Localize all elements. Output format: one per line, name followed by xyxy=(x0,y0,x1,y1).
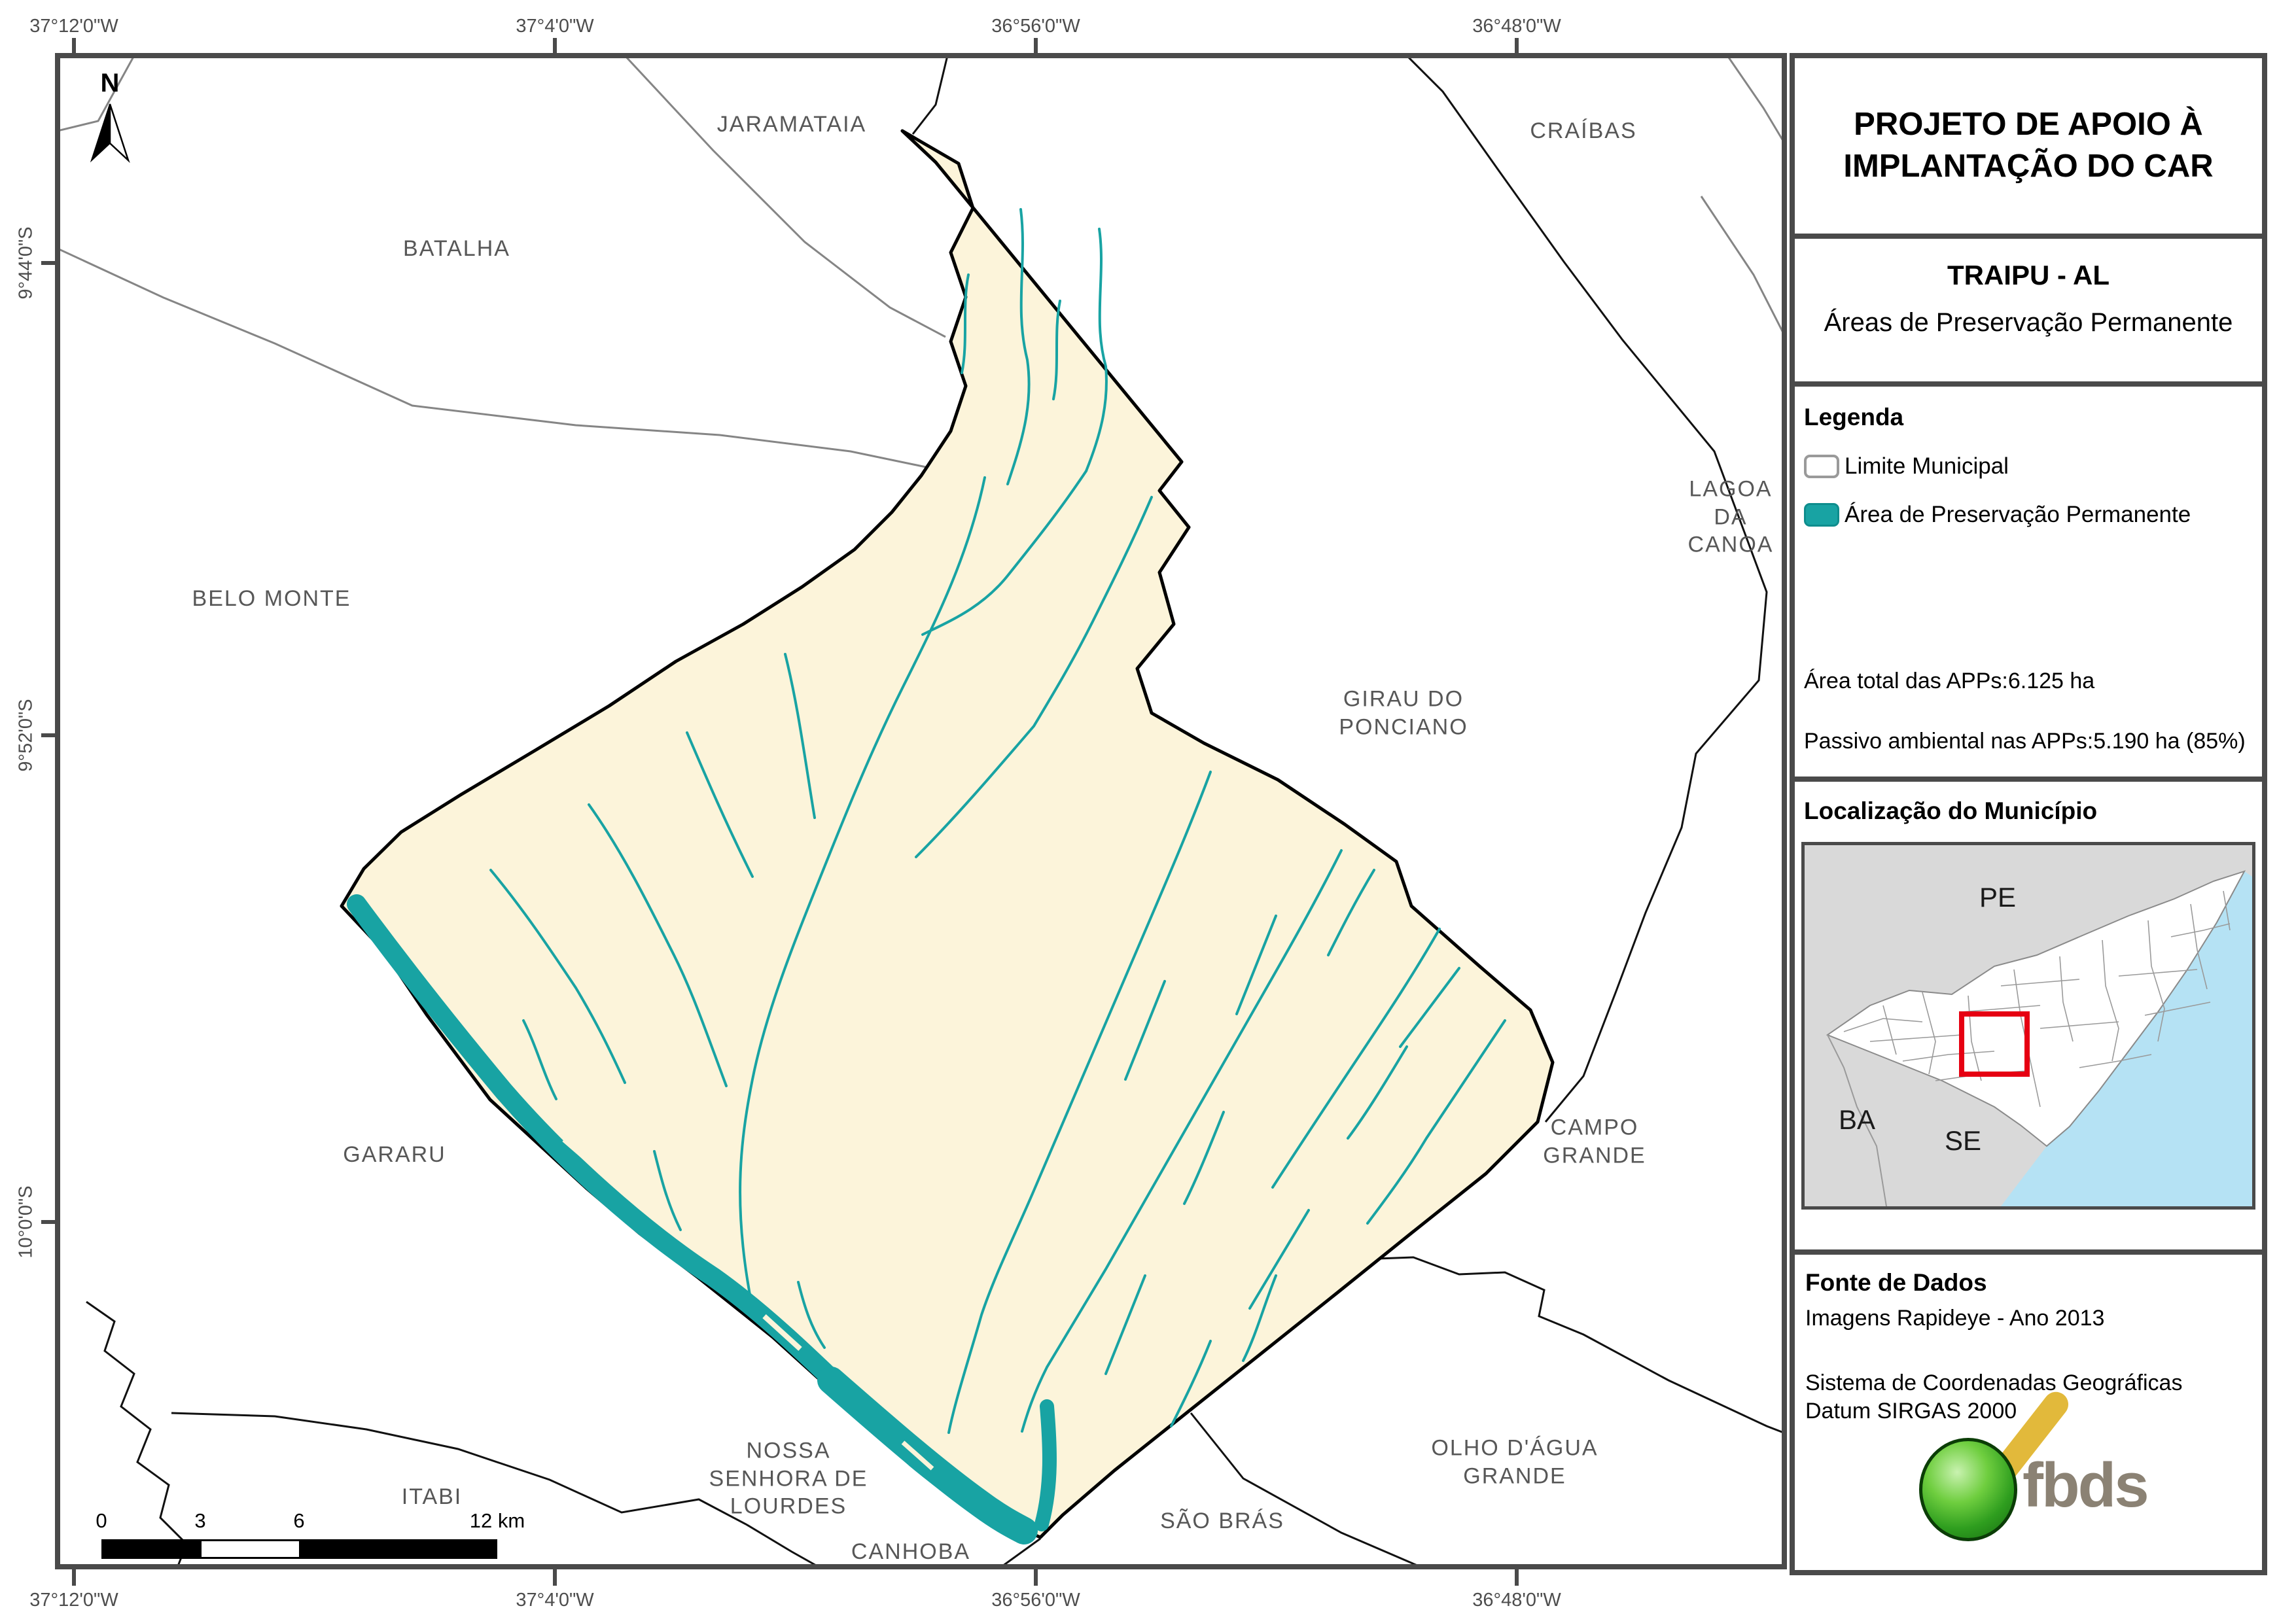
location-inset-map: PE BA SE xyxy=(1801,842,2255,1210)
tick-bottom-2 xyxy=(553,1569,557,1586)
tick-bottom-1 xyxy=(72,1569,76,1586)
axis-label-top-1: 37°12'0"W xyxy=(29,16,118,37)
inset-label-pe: PE xyxy=(1979,882,2016,913)
axis-label-bottom-1: 37°12'0"W xyxy=(29,1590,118,1611)
fbds-logo: fbds xyxy=(1919,1372,2155,1562)
map-label-jaramataia: JARAMATAIA xyxy=(717,111,866,139)
project-title-line1: PROJETO DE APOIO À xyxy=(1843,104,2213,146)
axis-label-bottom-3: 36°56'0"W xyxy=(991,1590,1080,1611)
tick-left-2 xyxy=(41,733,58,737)
map-label-craibas: CRAÍBAS xyxy=(1530,117,1636,145)
project-title: PROJETO DE APOIO À IMPLANTAÇÃO DO CAR xyxy=(1843,104,2213,187)
scale-tick-0: 0 xyxy=(96,1509,107,1533)
panel-title-box: PROJETO DE APOIO À IMPLANTAÇÃO DO CAR xyxy=(1790,53,2267,239)
location-heading: Localização do Município xyxy=(1804,797,2253,825)
tick-left-3 xyxy=(41,1220,58,1224)
axis-label-left-1: 9°44'0"S xyxy=(16,226,37,299)
axis-label-top-4: 36°48'0"W xyxy=(1472,16,1561,37)
map-label-lagoa-da-canoa: LAGOA DA CANOA xyxy=(1688,475,1774,559)
axis-label-bottom-2: 37°4'0"W xyxy=(516,1590,593,1611)
scale-bar: 0 3 6 12 km xyxy=(77,1509,522,1569)
tick-bottom-3 xyxy=(1034,1569,1038,1586)
source-heading: Fonte de Dados xyxy=(1805,1269,2252,1297)
map-label-gararu: GARARU xyxy=(343,1141,446,1169)
panel-subtitle-box: TRAIPU - AL Áreas de Preservação Permane… xyxy=(1790,234,2267,387)
inset-map-graphic xyxy=(1805,845,2252,1206)
map-label-batalha: BATALHA xyxy=(403,235,510,263)
fbds-logo-text: fbds xyxy=(2022,1450,2147,1522)
map-graphic xyxy=(58,56,1787,1569)
inset-label-ba: BA xyxy=(1839,1104,1875,1136)
legend-item-app: Área de Preservação Permanente xyxy=(1804,502,2253,528)
axis-label-left-3: 10°0'0"S xyxy=(16,1185,37,1258)
panel-source-box: Fonte de Dados Imagens Rapideye - Ano 20… xyxy=(1790,1249,2267,1575)
tick-top-2 xyxy=(553,38,557,54)
map-label-itabi: ITABI xyxy=(402,1483,463,1511)
legend-item-label: Limite Municipal xyxy=(1845,453,2009,480)
scale-tick-6: 6 xyxy=(293,1509,304,1533)
fbds-logo-globe-icon xyxy=(1919,1438,2017,1541)
map-subject: Áreas de Preservação Permanente xyxy=(1795,308,2262,338)
inset-label-se: SE xyxy=(1945,1125,1981,1157)
scale-tick-3: 3 xyxy=(194,1509,205,1533)
legend-item-label: Área de Preservação Permanente xyxy=(1845,502,2191,528)
panel-legend-box: Legenda Limite Municipal Área de Preserv… xyxy=(1790,381,2267,782)
municipality-name: TRAIPU - AL xyxy=(1795,260,2262,291)
panel-location-box: Localização do Município xyxy=(1790,777,2267,1255)
legend-heading: Legenda xyxy=(1804,404,2253,431)
municipal-limit-swatch-icon xyxy=(1804,455,1839,478)
tick-left-1 xyxy=(41,261,58,265)
map-label-girau-do-ponciano: GIRAU DO PONCIANO xyxy=(1339,686,1468,741)
legend-item-limite-municipal: Limite Municipal xyxy=(1804,453,2253,480)
map-label-canhoba: CANHOBA xyxy=(851,1538,970,1566)
north-arrow: N xyxy=(71,69,149,180)
app-statistics: Área total das APPs:6.125 ha Passivo amb… xyxy=(1804,637,2246,786)
map-area: JARAMATAIA BATALHA CRAÍBAS BELO MONTE LA… xyxy=(58,56,1787,1569)
app-area-swatch-icon xyxy=(1804,503,1839,527)
axis-label-bottom-4: 36°48'0"W xyxy=(1472,1590,1561,1611)
tick-top-3 xyxy=(1034,38,1038,54)
north-arrow-label: N xyxy=(101,69,120,98)
axis-label-top-3: 36°56'0"W xyxy=(991,16,1080,37)
traipu-polygon xyxy=(342,131,1553,1537)
map-document: JARAMATAIA BATALHA CRAÍBAS BELO MONTE LA… xyxy=(0,0,2296,1623)
map-label-nossa-senhora-de-lourdes: NOSSA SENHORA DE LOURDES xyxy=(709,1437,868,1520)
source-imagery: Imagens Rapideye - Ano 2013 xyxy=(1805,1306,2252,1331)
app-liability: Passivo ambiental nas APPs:5.190 ha (85%… xyxy=(1804,727,2246,757)
map-label-sao-bras: SÃO BRÁS xyxy=(1160,1507,1284,1535)
project-title-line2: IMPLANTAÇÃO DO CAR xyxy=(1843,146,2213,188)
scale-bar-graphic xyxy=(101,1539,497,1559)
tick-bottom-4 xyxy=(1515,1569,1519,1586)
tick-top-4 xyxy=(1515,38,1519,54)
axis-label-left-2: 9°52'0"S xyxy=(16,699,37,771)
scale-tick-12: 12 km xyxy=(470,1509,525,1533)
neighbor-boundaries-gray xyxy=(58,56,1787,468)
north-arrow-icon xyxy=(89,103,131,163)
map-label-olho-dagua-grande: OLHO D'ÁGUA GRANDE xyxy=(1431,1435,1598,1490)
map-label-belo-monte: BELO MONTE xyxy=(192,585,351,613)
map-label-campo-grande: CAMPO GRANDE xyxy=(1498,1114,1691,1170)
tick-top-1 xyxy=(72,38,76,54)
axis-label-top-2: 37°4'0"W xyxy=(516,16,593,37)
app-total-area: Área total das APPs:6.125 ha xyxy=(1804,667,2246,697)
